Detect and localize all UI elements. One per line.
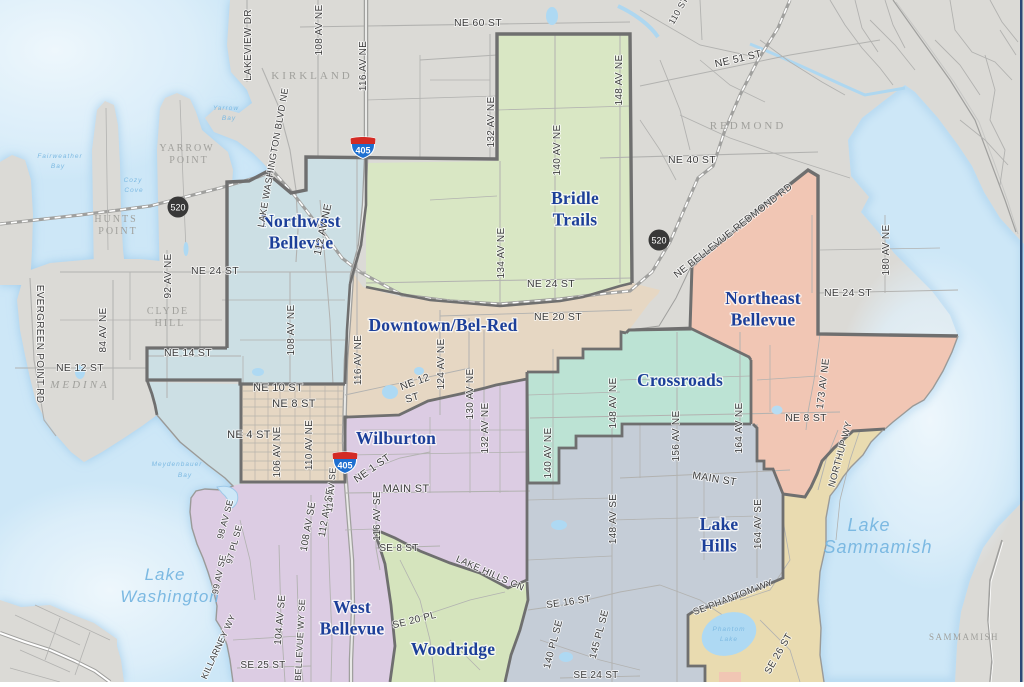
- svg-text:132 AV NE: 132 AV NE: [480, 403, 491, 454]
- svg-text:148 AV NE: 148 AV NE: [614, 55, 625, 106]
- svg-text:148 AV SE: 148 AV SE: [608, 494, 619, 544]
- svg-text:NE 14 ST: NE 14 ST: [164, 347, 212, 359]
- svg-text:132 AV NE: 132 AV NE: [486, 97, 497, 148]
- svg-text:84 AV NE: 84 AV NE: [98, 307, 109, 352]
- svg-text:Cove: Cove: [124, 187, 143, 194]
- svg-text:Lake: Lake: [700, 514, 739, 534]
- svg-text:Sammamish: Sammamish: [823, 537, 932, 557]
- svg-text:140 AV NE: 140 AV NE: [552, 125, 563, 176]
- svg-text:HUNTS: HUNTS: [94, 214, 137, 225]
- svg-text:Bay: Bay: [51, 163, 65, 170]
- svg-text:NE 24 ST: NE 24 ST: [527, 278, 575, 290]
- svg-text:NE 8 ST: NE 8 ST: [272, 398, 316, 410]
- svg-text:REDMOND: REDMOND: [710, 120, 787, 132]
- svg-text:124 AV NE: 124 AV NE: [436, 339, 447, 390]
- svg-text:Bellevue: Bellevue: [731, 310, 796, 330]
- svg-text:156 AV NE: 156 AV NE: [671, 411, 682, 462]
- svg-text:SE 25 ST: SE 25 ST: [240, 660, 285, 671]
- svg-text:164 AV NE: 164 AV NE: [734, 403, 745, 454]
- svg-text:Meydenbauer: Meydenbauer: [152, 461, 203, 468]
- svg-text:Northeast: Northeast: [725, 288, 801, 308]
- svg-text:Lake: Lake: [847, 515, 890, 535]
- svg-text:KIRKLAND: KIRKLAND: [271, 70, 352, 82]
- svg-text:Bellevue: Bellevue: [320, 619, 385, 639]
- svg-text:EVERGREEN POINT RD: EVERGREEN POINT RD: [34, 285, 45, 404]
- svg-text:Bridle: Bridle: [551, 188, 599, 208]
- svg-text:LAKEVIEW DR: LAKEVIEW DR: [243, 9, 254, 81]
- svg-text:164 AV SE: 164 AV SE: [753, 499, 764, 549]
- svg-text:520: 520: [651, 236, 666, 246]
- svg-text:MAIN ST: MAIN ST: [383, 483, 430, 495]
- svg-text:YARROW: YARROW: [159, 143, 214, 154]
- svg-text:West: West: [333, 597, 371, 617]
- svg-text:NE 8 ST: NE 8 ST: [785, 412, 827, 424]
- svg-text:130 AV NE: 130 AV NE: [465, 369, 476, 420]
- svg-text:Wilburton: Wilburton: [356, 428, 436, 448]
- svg-text:NE 12 ST: NE 12 ST: [56, 362, 104, 374]
- svg-text:Lake: Lake: [145, 565, 186, 584]
- svg-text:Bay: Bay: [178, 472, 192, 479]
- svg-text:92 AV NE: 92 AV NE: [163, 253, 174, 298]
- svg-text:SE 8 ST: SE 8 ST: [379, 543, 418, 554]
- svg-text:108 AV NE: 108 AV NE: [286, 305, 297, 356]
- svg-text:NE 4 ST: NE 4 ST: [227, 429, 271, 441]
- svg-text:Trails: Trails: [553, 210, 598, 230]
- svg-text:Phantom: Phantom: [712, 626, 745, 633]
- svg-text:405: 405: [355, 146, 370, 156]
- svg-text:140 AV NE: 140 AV NE: [543, 428, 554, 479]
- svg-text:Cozy: Cozy: [124, 177, 143, 184]
- svg-text:NE 40 ST: NE 40 ST: [668, 154, 716, 166]
- svg-text:NE 20 ST: NE 20 ST: [534, 311, 582, 323]
- svg-text:116 AV SE: 116 AV SE: [372, 491, 383, 541]
- svg-text:106 AV NE: 106 AV NE: [272, 427, 283, 478]
- svg-text:148 AV NE: 148 AV NE: [608, 378, 619, 429]
- svg-text:SAMMAMISH: SAMMAMISH: [929, 632, 999, 642]
- svg-text:Lake: Lake: [720, 636, 738, 643]
- svg-text:NE 10 ST: NE 10 ST: [253, 382, 303, 394]
- svg-text:Crossroads: Crossroads: [637, 370, 723, 390]
- svg-text:Downtown/Bel-Red: Downtown/Bel-Red: [368, 315, 517, 335]
- svg-text:Bay: Bay: [222, 115, 236, 122]
- svg-text:POINT: POINT: [169, 155, 208, 166]
- svg-text:110 AV NE: 110 AV NE: [304, 420, 315, 470]
- svg-text:Hills: Hills: [701, 536, 737, 556]
- svg-text:Washington: Washington: [120, 587, 219, 606]
- svg-text:180 AV NE: 180 AV NE: [881, 225, 892, 276]
- svg-text:NE 60 ST: NE 60 ST: [454, 17, 502, 29]
- svg-text:116 AV NE: 116 AV NE: [358, 41, 369, 91]
- svg-text:MEDINA: MEDINA: [49, 379, 110, 391]
- svg-text:108 AV NE: 108 AV NE: [314, 5, 325, 56]
- svg-text:POINT: POINT: [98, 226, 137, 237]
- svg-text:SE 24 ST: SE 24 ST: [573, 670, 618, 681]
- svg-text:116 AV NE: 116 AV NE: [353, 335, 364, 385]
- svg-text:405: 405: [337, 461, 352, 471]
- svg-text:HILL: HILL: [155, 318, 186, 329]
- svg-text:NE 24 ST: NE 24 ST: [191, 265, 239, 277]
- svg-text:CLYDE: CLYDE: [147, 306, 189, 317]
- svg-text:NE 24 ST: NE 24 ST: [824, 287, 872, 299]
- svg-text:134 AV NE: 134 AV NE: [496, 228, 507, 279]
- svg-text:Yarrow: Yarrow: [213, 105, 239, 112]
- svg-text:Fairweather: Fairweather: [37, 153, 82, 160]
- svg-text:520: 520: [170, 203, 185, 213]
- svg-text:Woodridge: Woodridge: [411, 639, 495, 659]
